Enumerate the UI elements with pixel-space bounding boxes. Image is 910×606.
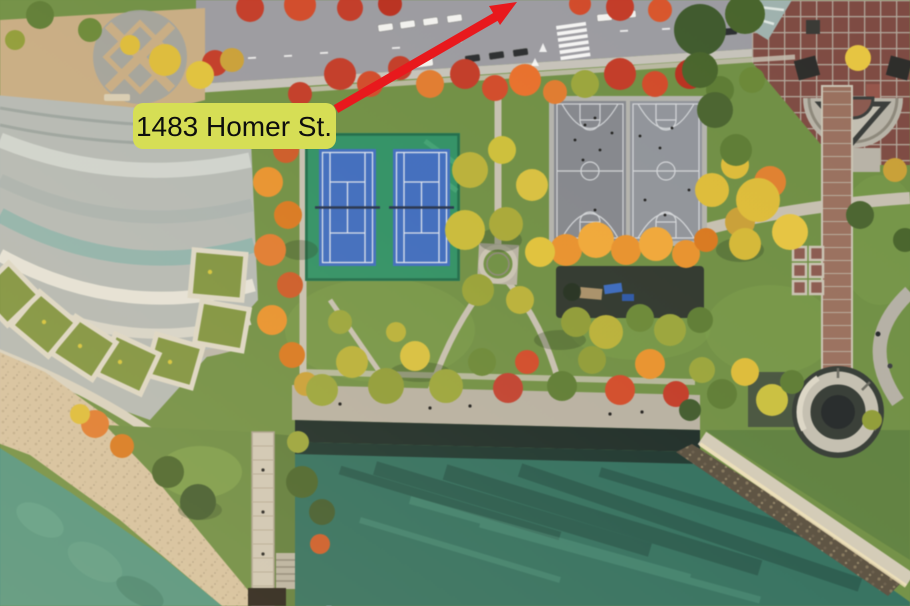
address-label: 1483 Homer St. xyxy=(133,103,336,149)
scene xyxy=(0,0,910,606)
address-label-text: 1483 Homer St. xyxy=(136,111,332,142)
aerial-photo: 1483 Homer St. xyxy=(0,0,910,606)
aerial-photo-viewport: 1483 Homer St. xyxy=(0,0,910,606)
sunlight-overlay xyxy=(0,0,910,606)
